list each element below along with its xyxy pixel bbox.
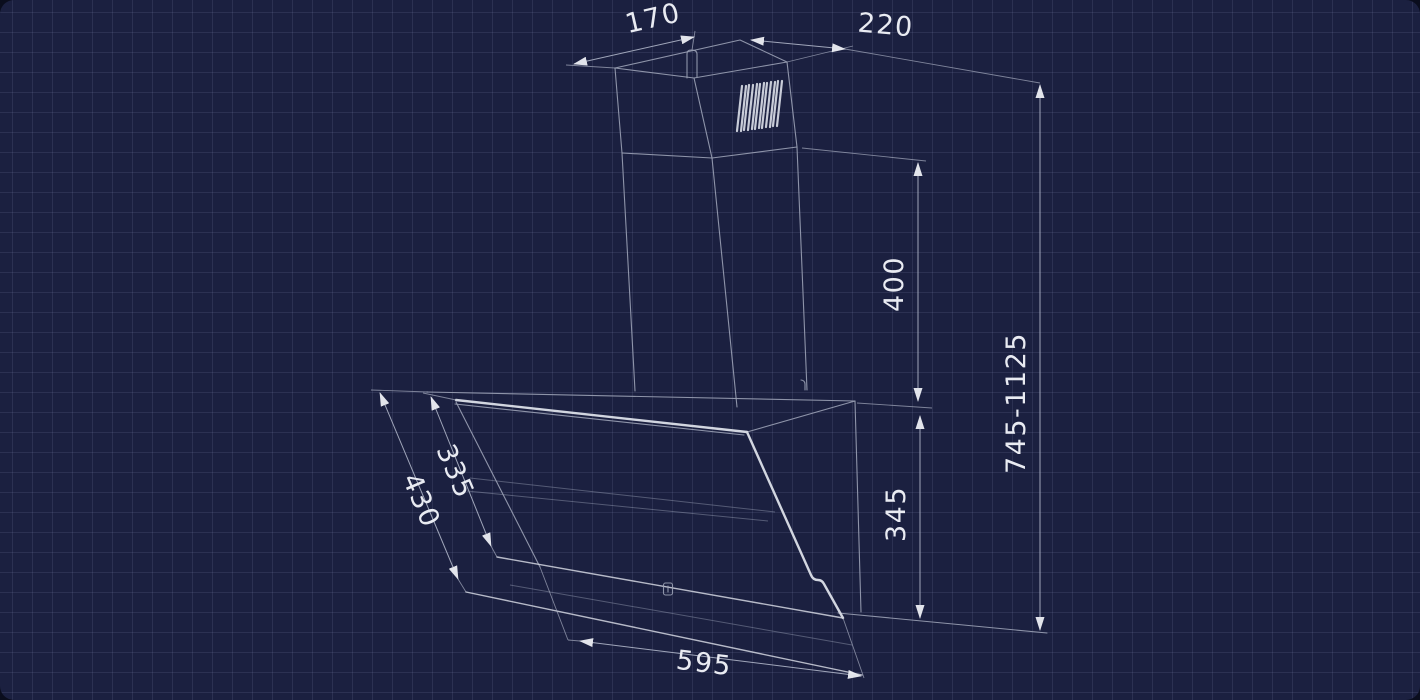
vent-grille xyxy=(737,81,782,131)
label-glass-upper-length: 335 xyxy=(430,440,480,504)
dimension-body-back-height: 345 xyxy=(881,416,920,618)
label-body-width: 595 xyxy=(674,645,733,683)
label-glass-total-length: 430 xyxy=(396,469,446,533)
touch-control-icon xyxy=(664,583,673,595)
dimension-glass-upper-length: 335 xyxy=(423,393,497,557)
dimension-chimney-top-width: 170 xyxy=(566,0,695,68)
glass-panel xyxy=(456,402,864,678)
hood-body xyxy=(427,392,1047,633)
dimension-body-width: 595 xyxy=(568,640,861,682)
dimension-chimney-top-depth: 220 xyxy=(751,8,1040,83)
hood-dimension-diagram: 170 220 400 745-1125 345 335 xyxy=(0,0,1420,700)
label-chimney-height: 400 xyxy=(879,256,910,312)
label-chimney-top-width: 170 xyxy=(622,0,684,40)
chimney-outline xyxy=(615,40,807,407)
dimension-chimney-height: 400 xyxy=(802,148,932,408)
blueprint-canvas: 170 220 400 745-1125 345 335 xyxy=(0,0,1420,700)
label-overall-height-range: 745-1125 xyxy=(1001,332,1032,474)
label-body-back-height: 345 xyxy=(881,486,912,542)
label-chimney-top-depth: 220 xyxy=(856,8,915,44)
dimension-overall-height: 745-1125 xyxy=(1001,85,1040,630)
